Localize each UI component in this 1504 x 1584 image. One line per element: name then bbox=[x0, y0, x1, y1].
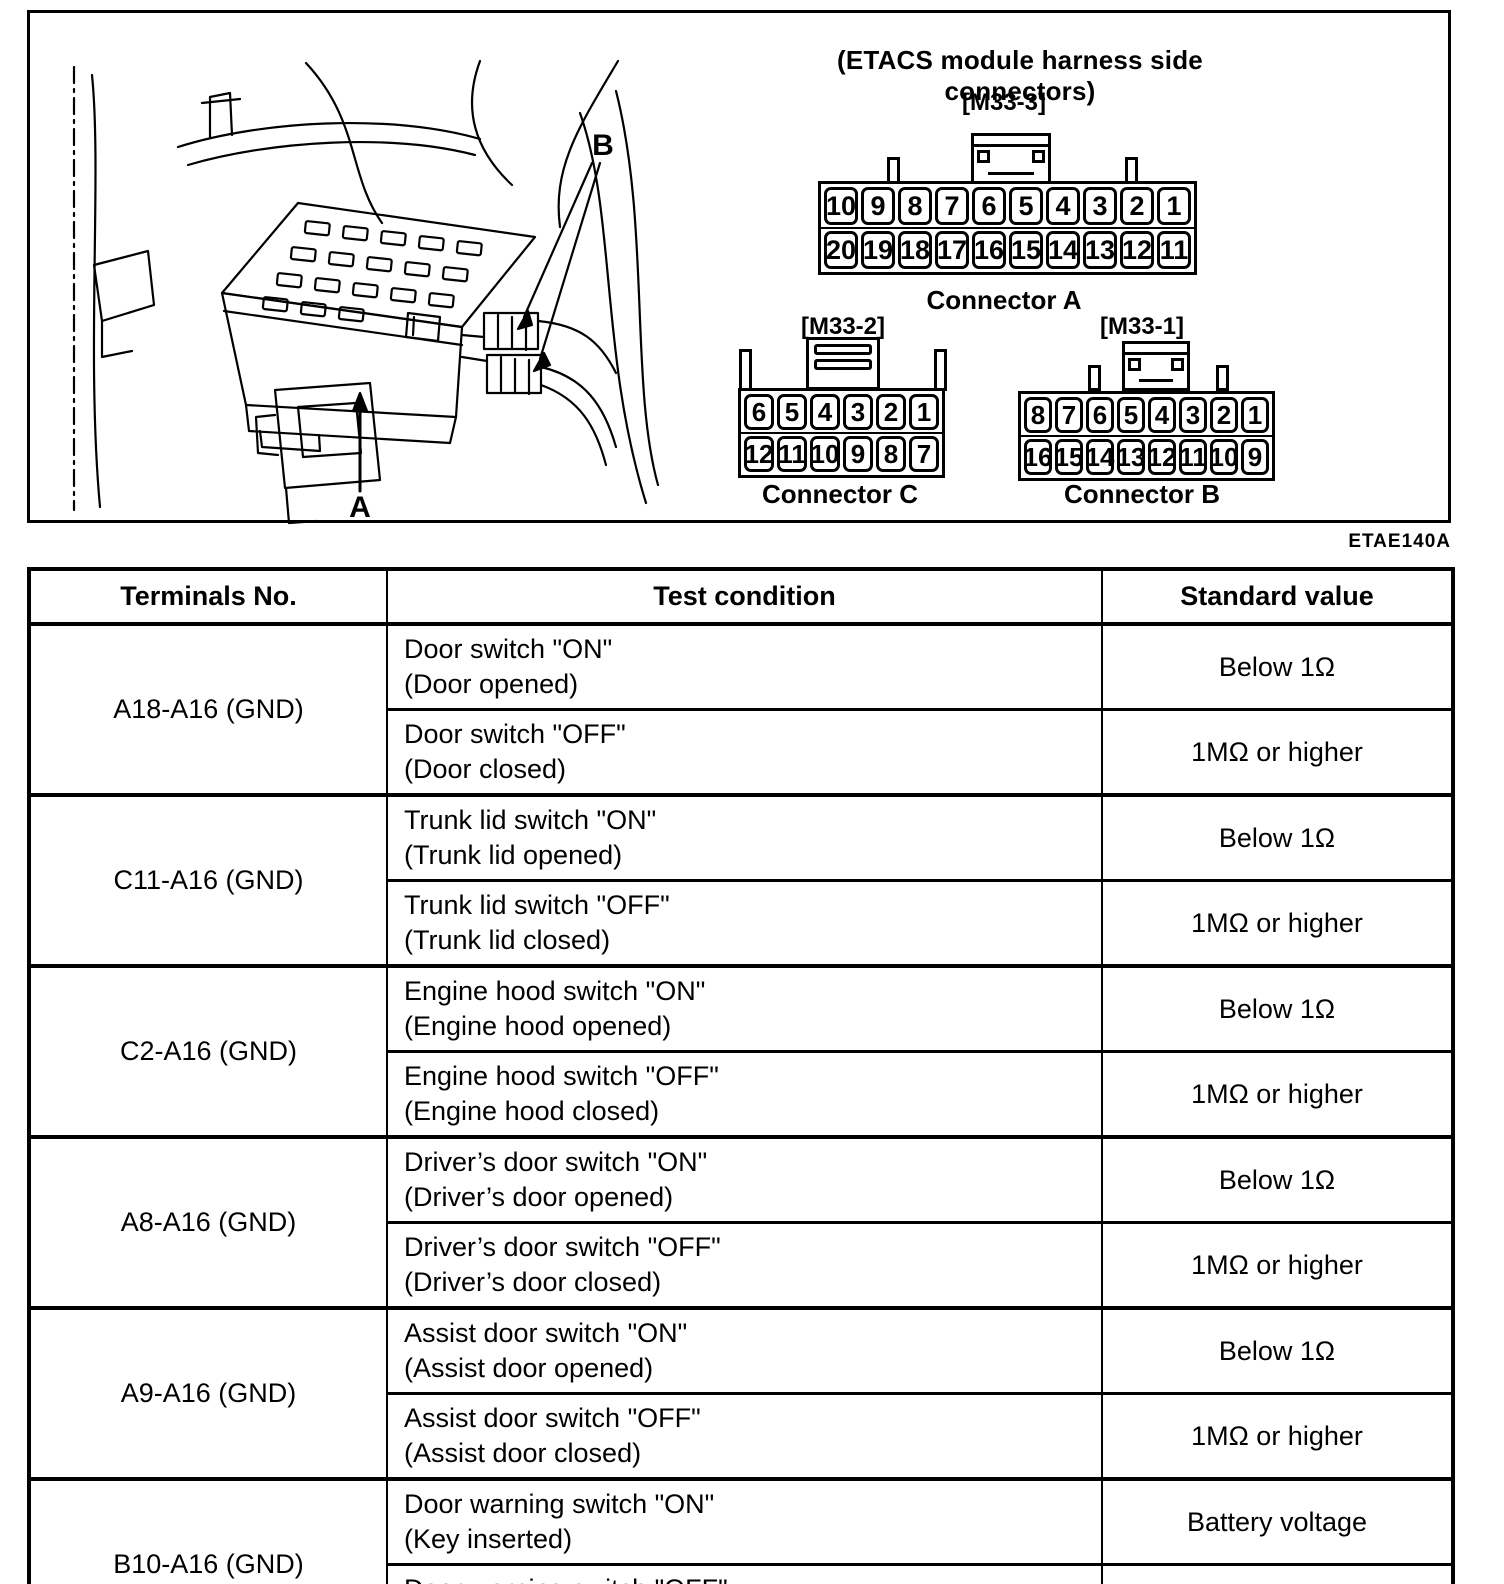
connector-a-latch bbox=[971, 133, 1051, 184]
connector-c-latch bbox=[806, 337, 880, 390]
pin-cell: 3 bbox=[1179, 397, 1207, 433]
value-cell: 1MΩ or higher bbox=[1102, 1223, 1453, 1309]
fusebox-illustration: A B bbox=[60, 55, 660, 525]
table-group: A18-A16 (GND) Door switch "ON" (Door ope… bbox=[29, 624, 1453, 795]
connector-a-row2: 20191817161514131211 bbox=[824, 231, 1191, 269]
value-cell: 1MΩ or higher bbox=[1102, 881, 1453, 967]
illustration-label-b: B bbox=[592, 129, 614, 162]
condition-line: Assist door switch "ON" bbox=[404, 1316, 1091, 1351]
pin-cell: 5 bbox=[1009, 187, 1043, 225]
condition-detail: (Trunk lid opened) bbox=[404, 838, 1091, 873]
condition-line: Door warning switch "ON" bbox=[404, 1487, 1091, 1522]
pin-cell: 8 bbox=[1024, 397, 1052, 433]
pin-cell: 14 bbox=[1046, 231, 1080, 269]
latch-detail bbox=[814, 359, 872, 370]
condition-line: Trunk lid switch "ON" bbox=[404, 803, 1091, 838]
pin-cell: 1 bbox=[909, 394, 939, 430]
pin-cell: 17 bbox=[935, 231, 969, 269]
condition-detail: (Key inserted) bbox=[404, 1522, 1091, 1557]
latch-detail bbox=[1171, 358, 1184, 371]
condition-cell: Trunk lid switch "ON" (Trunk lid opened) bbox=[387, 795, 1102, 881]
condition-line: Driver’s door switch "OFF" bbox=[404, 1230, 1091, 1265]
pin-cell: 10 bbox=[1210, 439, 1238, 475]
pin-cell: 13 bbox=[1083, 231, 1117, 269]
pin-cell: 3 bbox=[1083, 187, 1117, 225]
pin-cell: 7 bbox=[909, 436, 939, 472]
connector-b-row1: 87654321 bbox=[1024, 397, 1269, 433]
pin-cell: 12 bbox=[1148, 439, 1176, 475]
pin-cell: 5 bbox=[1117, 397, 1145, 433]
connector-b-label: Connector B bbox=[1018, 479, 1266, 510]
connector-c-pinout: 654321 121110987 bbox=[738, 388, 945, 478]
pin-cell: 2 bbox=[1120, 187, 1154, 225]
pin-cell: 19 bbox=[861, 231, 895, 269]
connector-b-pinout: 87654321 161514131211109 bbox=[1018, 391, 1275, 481]
pin-cell: 9 bbox=[843, 436, 873, 472]
row-separator bbox=[821, 227, 1194, 229]
table-group: B10-A16 (GND) Door warning switch "ON" (… bbox=[29, 1479, 1453, 1584]
pin-cell: 4 bbox=[1148, 397, 1176, 433]
condition-line: Engine hood switch "OFF" bbox=[404, 1059, 1091, 1094]
connector-a-tab-left bbox=[887, 157, 900, 184]
value-cell: Below 1V bbox=[1102, 1565, 1453, 1584]
condition-detail: (Assist door opened) bbox=[404, 1351, 1091, 1386]
pin-cell: 3 bbox=[843, 394, 873, 430]
condition-cell: Trunk lid switch "OFF" (Trunk lid closed… bbox=[387, 881, 1102, 967]
connector-a-pinout: 10987654321 20191817161514131211 bbox=[818, 181, 1197, 275]
col-header-standard-value: Standard value bbox=[1102, 569, 1453, 624]
connector-b-tab-right bbox=[1216, 365, 1229, 391]
table-group: C2-A16 (GND) Engine hood switch "ON" (En… bbox=[29, 966, 1453, 1137]
pin-cell: 4 bbox=[810, 394, 840, 430]
pin-cell: 16 bbox=[972, 231, 1006, 269]
condition-detail: (Engine hood opened) bbox=[404, 1009, 1091, 1044]
value-cell: Below 1Ω bbox=[1102, 795, 1453, 881]
terminal-cell: A9-A16 (GND) bbox=[29, 1308, 387, 1479]
pin-cell: 15 bbox=[1055, 439, 1083, 475]
connector-c-tab-left bbox=[739, 349, 752, 391]
table-row: A18-A16 (GND) Door switch "ON" (Door ope… bbox=[29, 624, 1453, 710]
col-header-test-condition: Test condition bbox=[387, 569, 1102, 624]
pin-cell: 11 bbox=[1179, 439, 1207, 475]
pin-cell: 14 bbox=[1086, 439, 1114, 475]
latch-detail bbox=[1125, 344, 1187, 355]
pin-cell: 10 bbox=[810, 436, 840, 472]
condition-cell: Assist door switch "OFF" (Assist door cl… bbox=[387, 1394, 1102, 1480]
terminal-cell: A8-A16 (GND) bbox=[29, 1137, 387, 1308]
table-row: A9-A16 (GND) Assist door switch "ON" (As… bbox=[29, 1308, 1453, 1394]
pin-cell: 7 bbox=[935, 187, 969, 225]
condition-detail: (Driver’s door opened) bbox=[404, 1180, 1091, 1215]
pin-cell: 15 bbox=[1009, 231, 1043, 269]
pin-cell: 7 bbox=[1055, 397, 1083, 433]
condition-cell: Door warning switch "OFF" (Key removed) bbox=[387, 1565, 1102, 1584]
row-separator bbox=[741, 432, 942, 434]
table-row: C2-A16 (GND) Engine hood switch "ON" (En… bbox=[29, 966, 1453, 1052]
pin-cell: 18 bbox=[898, 231, 932, 269]
connector-a-ref: [M33-3] bbox=[818, 89, 1190, 117]
value-cell: Below 1Ω bbox=[1102, 1308, 1453, 1394]
pin-cell: 2 bbox=[1210, 397, 1238, 433]
latch-detail bbox=[974, 136, 1048, 147]
connector-diagram-panel: A B (ETACS module harness side connector… bbox=[27, 10, 1451, 523]
connector-b-ref: [M33-1] bbox=[1018, 313, 1266, 341]
condition-cell: Door switch "OFF" (Door closed) bbox=[387, 710, 1102, 796]
pin-cell: 9 bbox=[861, 187, 895, 225]
latch-detail bbox=[1139, 379, 1173, 382]
condition-line: Engine hood switch "ON" bbox=[404, 974, 1091, 1009]
condition-detail: (Door opened) bbox=[404, 667, 1091, 702]
table-row: B10-A16 (GND) Door warning switch "ON" (… bbox=[29, 1479, 1453, 1565]
pin-cell: 13 bbox=[1117, 439, 1145, 475]
condition-cell: Driver’s door switch "ON" (Driver’s door… bbox=[387, 1137, 1102, 1223]
table-row: A8-A16 (GND) Driver’s door switch "ON" (… bbox=[29, 1137, 1453, 1223]
terminal-cell: C11-A16 (GND) bbox=[29, 795, 387, 966]
latch-detail bbox=[1032, 150, 1045, 163]
condition-cell: Assist door switch "ON" (Assist door ope… bbox=[387, 1308, 1102, 1394]
condition-line: Trunk lid switch "OFF" bbox=[404, 888, 1091, 923]
condition-detail: (Door closed) bbox=[404, 752, 1091, 787]
condition-line: Driver’s door switch "ON" bbox=[404, 1145, 1091, 1180]
connector-c-row2: 121110987 bbox=[744, 436, 939, 472]
table-group: A9-A16 (GND) Assist door switch "ON" (As… bbox=[29, 1308, 1453, 1479]
connector-b-row2: 161514131211109 bbox=[1024, 439, 1269, 475]
condition-line: Assist door switch "OFF" bbox=[404, 1401, 1091, 1436]
table-row: C11-A16 (GND) Trunk lid switch "ON" (Tru… bbox=[29, 795, 1453, 881]
condition-cell: Door warning switch "ON" (Key inserted) bbox=[387, 1479, 1102, 1565]
connector-c-row1: 654321 bbox=[744, 394, 939, 430]
terminal-cell: B10-A16 (GND) bbox=[29, 1479, 387, 1584]
pin-cell: 5 bbox=[777, 394, 807, 430]
condition-cell: Door switch "ON" (Door opened) bbox=[387, 624, 1102, 710]
pin-cell: 8 bbox=[876, 436, 906, 472]
pin-cell: 4 bbox=[1046, 187, 1080, 225]
pin-cell: 8 bbox=[898, 187, 932, 225]
condition-cell: Engine hood switch "ON" (Engine hood ope… bbox=[387, 966, 1102, 1052]
row-separator bbox=[1021, 435, 1272, 437]
value-cell: Battery voltage bbox=[1102, 1479, 1453, 1565]
condition-detail: (Assist door closed) bbox=[404, 1436, 1091, 1471]
connector-b-tab-left bbox=[1088, 365, 1101, 391]
manual-page: A B (ETACS module harness side connector… bbox=[0, 0, 1504, 1584]
condition-line: Door switch "OFF" bbox=[404, 717, 1091, 752]
connector-a-row1: 10987654321 bbox=[824, 187, 1191, 225]
value-cell: 1MΩ or higher bbox=[1102, 710, 1453, 796]
condition-line: Door warning switch "OFF" bbox=[404, 1572, 1091, 1584]
latch-detail bbox=[1128, 358, 1141, 371]
latch-detail bbox=[814, 344, 872, 355]
pin-cell: 10 bbox=[824, 187, 858, 225]
pin-cell: 11 bbox=[777, 436, 807, 472]
connector-a-tab-right bbox=[1125, 157, 1138, 184]
connector-c-label: Connector C bbox=[715, 479, 965, 510]
table-group: A8-A16 (GND) Driver’s door switch "ON" (… bbox=[29, 1137, 1453, 1308]
pin-cell: 1 bbox=[1157, 187, 1191, 225]
table-header-row: Terminals No. Test condition Standard va… bbox=[29, 569, 1453, 624]
table-group: C11-A16 (GND) Trunk lid switch "ON" (Tru… bbox=[29, 795, 1453, 966]
pin-cell: 12 bbox=[1120, 231, 1154, 269]
pin-cell: 12 bbox=[744, 436, 774, 472]
pin-cell: 11 bbox=[1157, 231, 1191, 269]
pin-cell: 6 bbox=[1086, 397, 1114, 433]
pin-cell: 6 bbox=[972, 187, 1006, 225]
latch-detail bbox=[988, 172, 1034, 175]
test-condition-table: Terminals No. Test condition Standard va… bbox=[27, 567, 1455, 1584]
col-header-terminals: Terminals No. bbox=[29, 569, 387, 624]
connector-b-latch bbox=[1122, 341, 1190, 391]
pin-cell: 16 bbox=[1024, 439, 1052, 475]
figure-code: ETAE140A bbox=[27, 531, 1451, 553]
pin-cell: 6 bbox=[744, 394, 774, 430]
pin-cell: 9 bbox=[1241, 439, 1269, 475]
condition-cell: Driver’s door switch "OFF" (Driver’s doo… bbox=[387, 1223, 1102, 1309]
value-cell: Below 1Ω bbox=[1102, 624, 1453, 710]
terminal-cell: C2-A16 (GND) bbox=[29, 966, 387, 1137]
value-cell: Below 1Ω bbox=[1102, 966, 1453, 1052]
condition-detail: (Trunk lid closed) bbox=[404, 923, 1091, 958]
condition-cell: Engine hood switch "OFF" (Engine hood cl… bbox=[387, 1052, 1102, 1138]
pin-cell: 2 bbox=[876, 394, 906, 430]
terminal-cell: A18-A16 (GND) bbox=[29, 624, 387, 795]
illustration-label-a: A bbox=[349, 491, 371, 524]
condition-line: Door switch "ON" bbox=[404, 632, 1091, 667]
value-cell: 1MΩ or higher bbox=[1102, 1394, 1453, 1480]
condition-detail: (Driver’s door closed) bbox=[404, 1265, 1091, 1300]
latch-detail bbox=[977, 150, 990, 163]
pin-cell: 20 bbox=[824, 231, 858, 269]
value-cell: 1MΩ or higher bbox=[1102, 1052, 1453, 1138]
pin-cell: 1 bbox=[1241, 397, 1269, 433]
connector-a-label: Connector A bbox=[818, 285, 1190, 316]
value-cell: Below 1Ω bbox=[1102, 1137, 1453, 1223]
connector-c-tab-right bbox=[934, 349, 947, 391]
condition-detail: (Engine hood closed) bbox=[404, 1094, 1091, 1129]
